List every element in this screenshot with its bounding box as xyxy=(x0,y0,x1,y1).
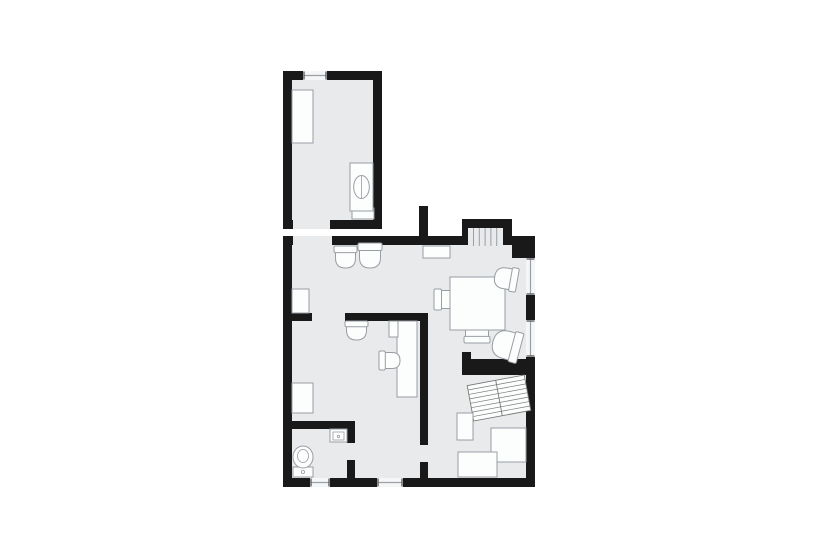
chair-seat xyxy=(384,353,400,369)
chair-seat xyxy=(360,250,381,269)
hall-shelf xyxy=(457,413,473,440)
wc-top-wall xyxy=(292,421,355,429)
window-right-1 xyxy=(526,258,535,295)
desk-chair xyxy=(379,351,400,370)
lounge-chair-2 xyxy=(358,243,382,268)
wc-door-stub-lower xyxy=(347,460,355,478)
office-right-wall-stub xyxy=(420,462,428,478)
office-wall-chair xyxy=(345,321,368,340)
sink xyxy=(330,429,347,442)
cabinet-left-lower xyxy=(292,383,313,413)
counter-bottom xyxy=(458,452,497,477)
chair-back xyxy=(358,243,382,251)
floorplan-page xyxy=(0,0,820,554)
office-doorway-opening xyxy=(312,313,345,321)
chair-back xyxy=(379,351,385,370)
divider-wall-left xyxy=(283,313,312,321)
window-upper-room-top xyxy=(303,71,327,80)
desk-accessory xyxy=(389,321,398,337)
window-bottom-1 xyxy=(310,478,330,487)
chair-back xyxy=(434,289,442,310)
stair-hall-wall xyxy=(462,359,535,375)
office-right-wall xyxy=(420,313,428,445)
chair-seat xyxy=(336,252,356,268)
cabinet-left-upper xyxy=(292,289,309,313)
window-bottom-2 xyxy=(377,478,403,487)
main-entry-opening xyxy=(293,236,332,245)
window-right-2 xyxy=(526,320,535,357)
bed xyxy=(292,90,313,143)
divider-wall-right xyxy=(345,313,428,321)
floorplan-svg xyxy=(0,0,820,554)
sink-basin xyxy=(333,432,344,440)
toilet xyxy=(293,446,313,477)
upper-room-door-opening xyxy=(293,220,330,229)
wall-shelf xyxy=(423,246,450,258)
chair-back xyxy=(334,246,357,253)
chair-back xyxy=(345,321,368,327)
lounge-chair-1 xyxy=(334,246,357,268)
wc-door-stub-upper xyxy=(347,421,355,443)
chair-back xyxy=(464,336,490,343)
chair-seat xyxy=(347,326,367,340)
main-top-stub xyxy=(419,206,428,236)
washing-machine xyxy=(350,163,373,211)
top-right-corner-block xyxy=(512,236,535,258)
stair-hall-wall-notch xyxy=(462,352,471,359)
